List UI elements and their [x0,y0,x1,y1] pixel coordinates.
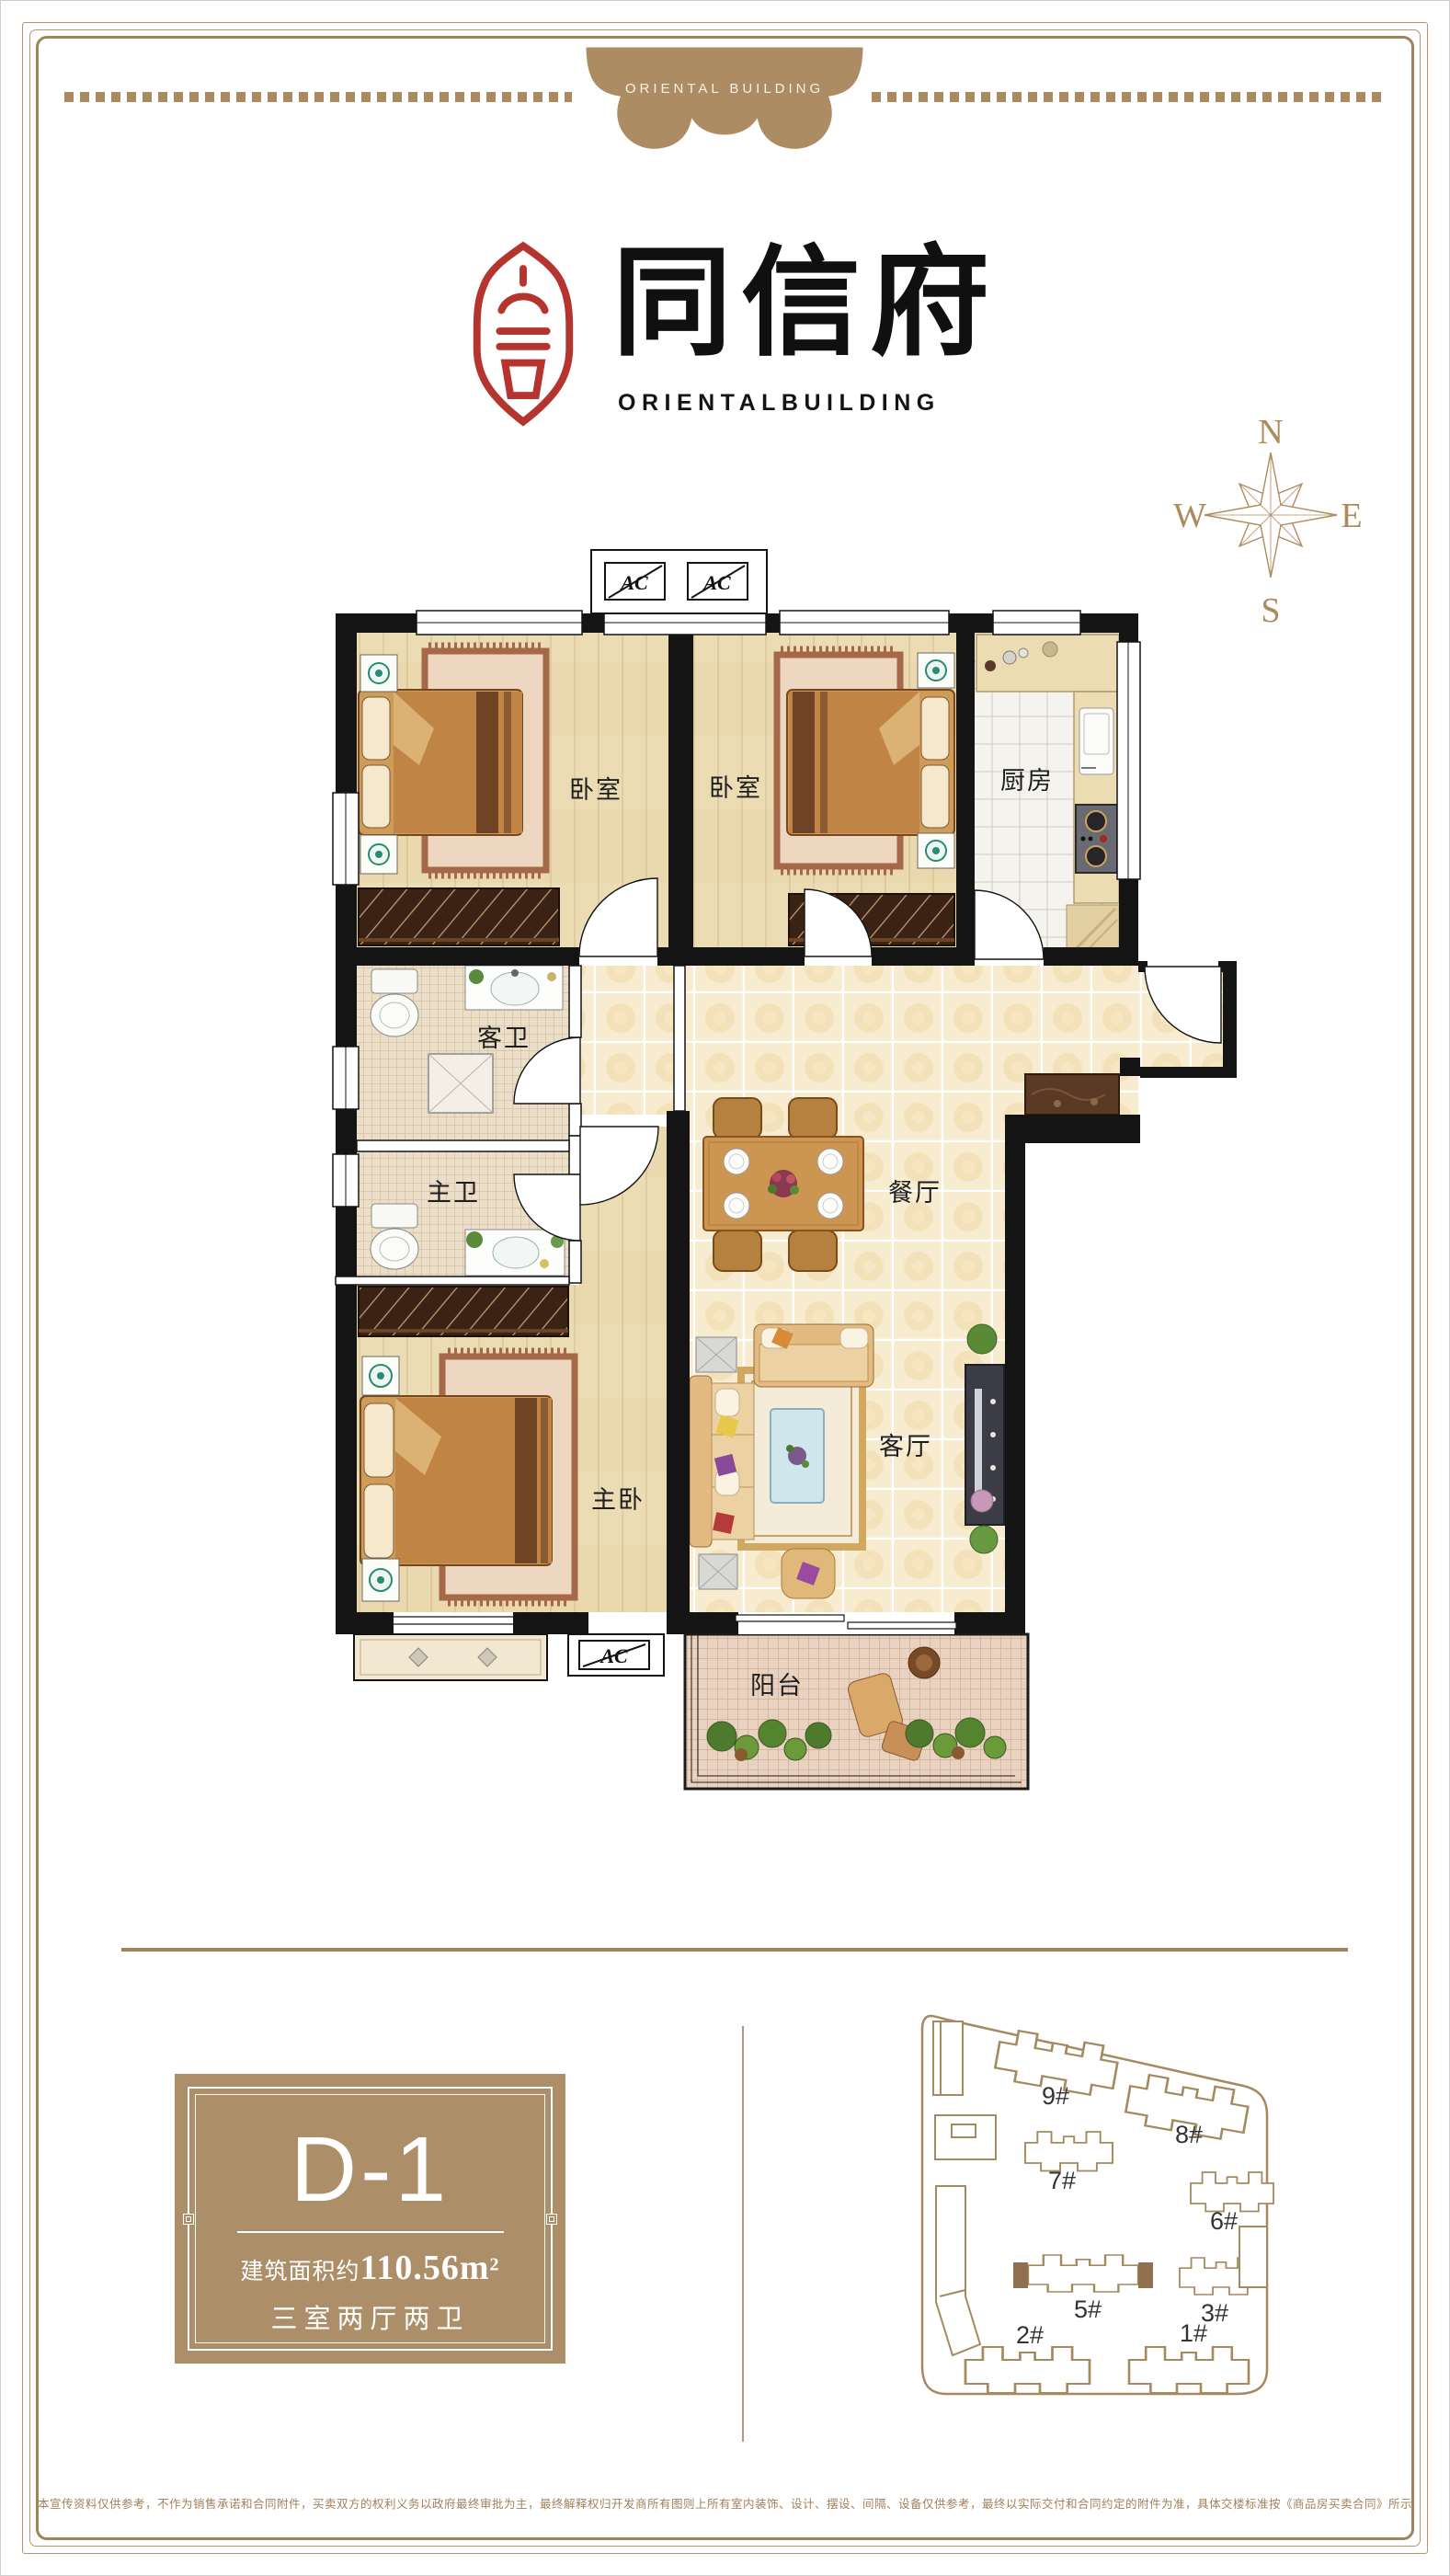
brand-english: ORIENTALBUILDING [618,390,941,417]
building-label-5: 5# [1074,2296,1102,2323]
bedroom1-furniture [359,646,559,945]
card-ornament-right [546,2214,557,2225]
room-label-balcony: 阳台 [750,1672,804,1700]
brand-name: 同信府 [612,237,1017,369]
building-label-2: 2# [1016,2321,1044,2349]
card-border-inner [195,2094,545,2343]
banner-text: ORIENTAL BUILDING [625,81,824,97]
building5-endcap-left [1013,2262,1028,2288]
compass-n: N [1258,413,1283,452]
banner-scallop-shape [585,46,864,150]
room-label-guest-bath: 客卫 [477,1025,531,1052]
card-ornament-left [183,2214,194,2225]
site-plan: 9# 8# 7# 6# 5# 3# 2# 1# [869,1986,1310,2479]
column-divider [742,2026,744,2442]
building-label-1: 1# [1180,2319,1207,2347]
room-label-kitchen: 厨房 [1000,767,1054,795]
building-label-7: 7# [1048,2167,1076,2194]
room-label-bedroom2: 卧室 [709,774,762,802]
room-label-dining: 餐厅 [888,1179,942,1207]
building-label-9: 9# [1042,2082,1069,2110]
section-divider [121,1948,1348,1952]
poster-page: ORIENTAL BUILDING 同信府 ORIENTALBUILDING [0,0,1450,2576]
building-label-6: 6# [1210,2207,1238,2235]
entry-cabinet [1025,1074,1119,1115]
master-bedroom-furniture [359,1287,575,1603]
bedroom2-furniture [777,649,954,945]
room-label-master-bath: 主卫 [427,1179,480,1207]
dash-ornament-right [872,92,1381,102]
seal-icon [477,246,570,421]
unit-info-card: D-1 建筑面积约110.56m2 三室两厅两卫 [175,2074,565,2364]
room-label-master-bedroom: 主卧 [591,1486,645,1514]
disclaimer-text: 本宣传资料仅供参考，不作为销售承诺和合同附件，买卖双方的权利义务以政府最终审批为… [0,2494,1450,2512]
building5-endcap-right [1138,2262,1153,2288]
room-label-living: 客厅 [879,1433,932,1460]
ac-platform-top: AC AC [591,550,767,613]
balcony [685,1634,1028,1789]
top-banner: ORIENTAL BUILDING [550,40,899,162]
sliding-door [736,1612,956,1634]
dash-ornament-left [64,92,572,102]
ac-platform-bottom: AC [568,1634,664,1676]
brand-seal [460,241,587,428]
room-label-bedroom1: 卧室 [569,776,622,804]
compass-e: E [1341,497,1362,535]
building-label-8: 8# [1175,2121,1203,2148]
floor-plan: AC AC AC 卧室 卧室 厨房 客卫 主卫 餐厅 客厅 主卧 阳台 [239,515,1306,1803]
